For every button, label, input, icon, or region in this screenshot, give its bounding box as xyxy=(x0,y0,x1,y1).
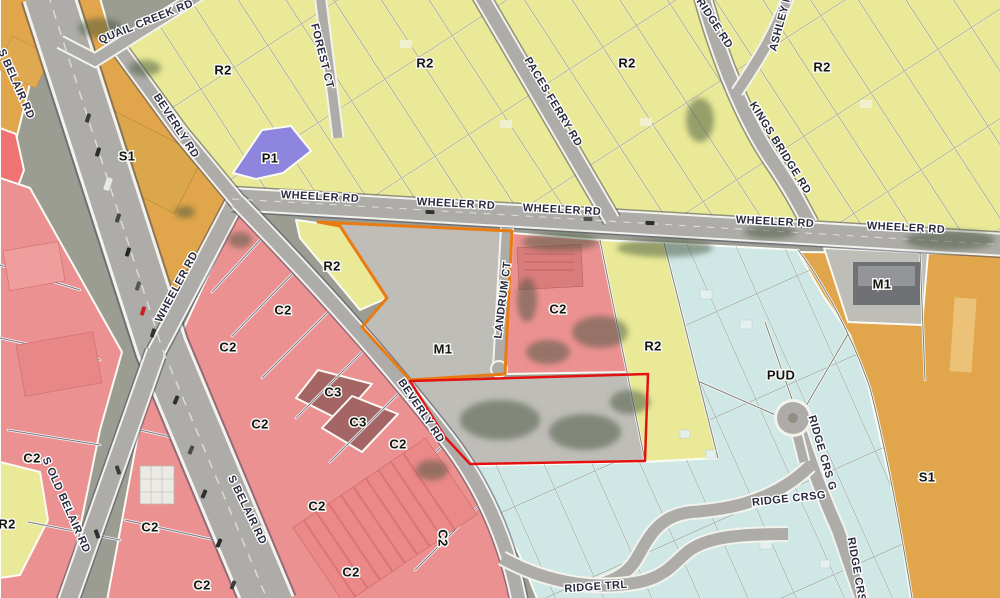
zone-label: C2 xyxy=(251,417,268,432)
zone-label: C2 xyxy=(274,303,291,318)
zone-label: C2 xyxy=(342,565,359,580)
zone-label: R2 xyxy=(0,517,16,532)
zone-label: S1 xyxy=(119,149,136,164)
zone-label: R2 xyxy=(214,63,231,78)
zone-label: M1 xyxy=(873,277,892,292)
zone-label: C2 xyxy=(436,529,451,546)
zoning-map-canvas[interactable]: R2R2R2R2S1P1R2M1C2R2PUDM1S1C2C2C2C3C3C2C… xyxy=(0,0,1000,598)
zone-label: C2 xyxy=(141,520,158,535)
zone-label: C2 xyxy=(308,499,325,514)
zone-label: C2 xyxy=(389,437,406,452)
zone-label: C2 xyxy=(193,578,210,593)
zone-label: C2 xyxy=(219,340,236,355)
zone-label: C2 xyxy=(23,451,40,466)
zone-label: M1 xyxy=(434,342,453,357)
zone-label: C2 xyxy=(549,302,566,317)
zone-label: C3 xyxy=(324,385,341,400)
zone-label: R2 xyxy=(644,339,661,354)
zone-label: R2 xyxy=(813,60,830,75)
zoning-map-viewport[interactable]: R2R2R2R2S1P1R2M1C2R2PUDM1S1C2C2C2C3C3C2C… xyxy=(0,0,1000,598)
zone-label: P1 xyxy=(262,151,279,166)
zone-label: C3 xyxy=(349,415,366,430)
zone-label: R2 xyxy=(416,56,433,71)
zone-label: S1 xyxy=(919,470,936,485)
zone-label: PUD xyxy=(767,368,795,383)
zone-label: R2 xyxy=(323,259,340,274)
zone-label: R2 xyxy=(618,56,635,71)
